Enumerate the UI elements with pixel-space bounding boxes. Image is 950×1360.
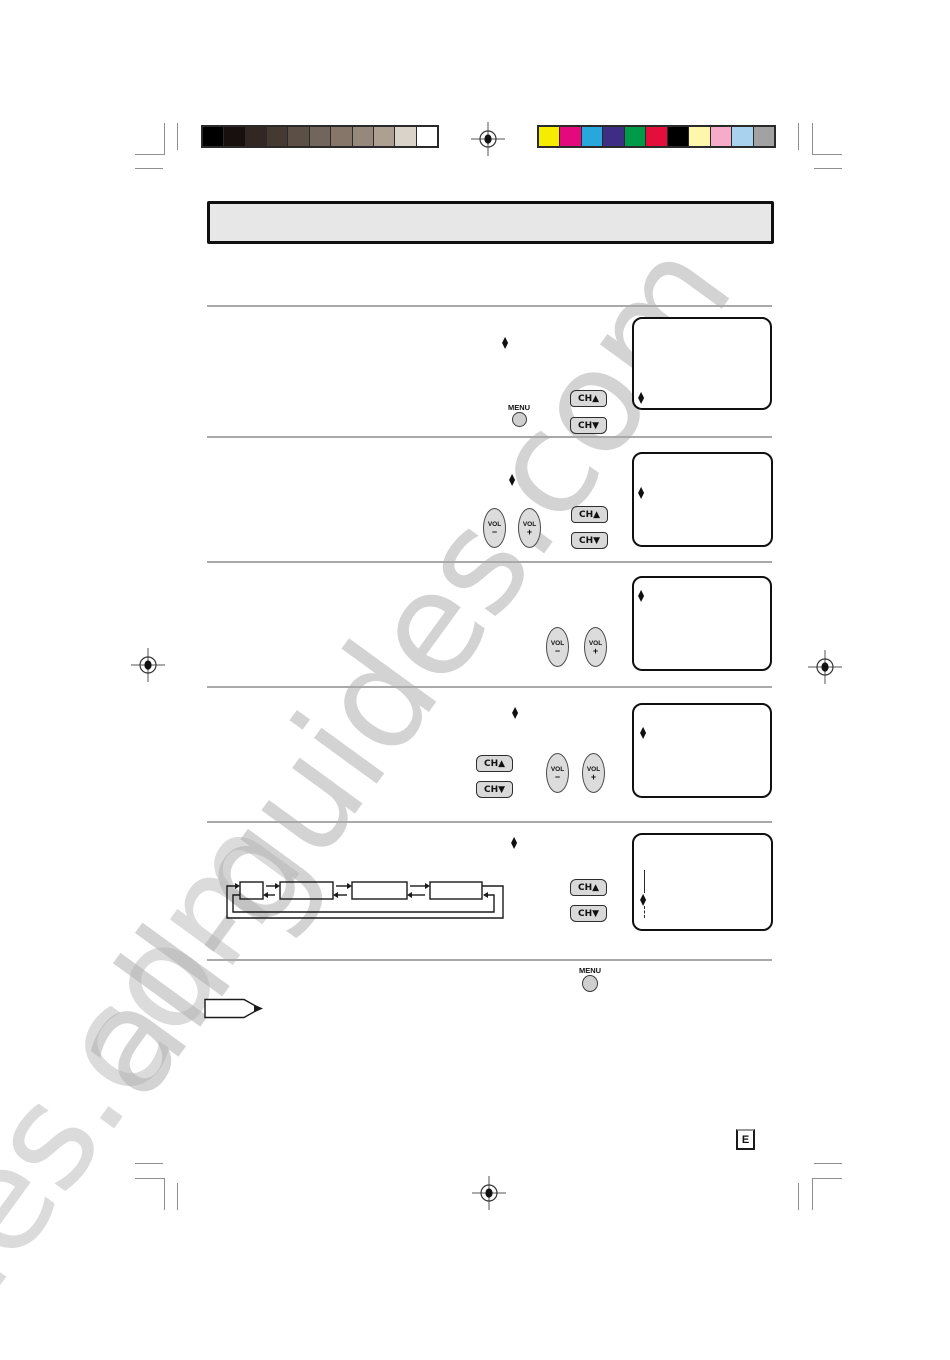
- section-divider: [207, 561, 772, 563]
- grayscale-swatch: [331, 127, 352, 146]
- up-down-arrows-icon: ▲▼: [638, 392, 644, 404]
- registration-mark-icon: [131, 648, 165, 682]
- channel-up-button: CH▲: [570, 879, 607, 896]
- color-swatch: [668, 127, 689, 146]
- grayscale-swatch: [395, 127, 416, 146]
- menu-button-label: MENU: [508, 403, 530, 412]
- volume-plus-button: VOL+: [518, 508, 541, 548]
- registration-mark-icon: [808, 650, 842, 684]
- color-calibration-strip: [537, 125, 776, 148]
- crop-mark-line: [135, 1178, 165, 1179]
- up-down-arrows-icon: ▲▼: [640, 727, 646, 739]
- channel-down-button: CH▼: [570, 905, 607, 922]
- page-language-badge: E: [736, 1129, 755, 1150]
- up-down-arrows-icon: ▲▼: [638, 590, 644, 602]
- up-down-arrows-icon: ▲▼: [640, 894, 646, 906]
- crop-mark-line: [812, 1178, 813, 1210]
- menu-button-label: MENU: [579, 966, 601, 975]
- menu-button: MENU: [579, 966, 601, 992]
- up-down-arrows-icon: ▲▼: [502, 337, 508, 349]
- channel-up-button: CH▲: [476, 755, 513, 772]
- menu-button: MENU: [508, 403, 530, 427]
- section-divider: [207, 959, 772, 961]
- up-down-arrows-icon: ▲▼: [509, 474, 515, 486]
- channel-up-button: CH▲: [571, 506, 608, 523]
- grayscale-swatch: [246, 127, 267, 146]
- color-swatch: [754, 127, 774, 146]
- volume-plus-button: VOL+: [584, 627, 607, 667]
- color-swatch: [732, 127, 753, 146]
- color-swatch: [625, 127, 646, 146]
- volume-minus-button: VOL−: [546, 753, 569, 793]
- menu-button-circle-icon: [582, 975, 598, 992]
- section-divider: [207, 436, 772, 438]
- tv-screen-illustration: [632, 452, 773, 547]
- color-swatch: [582, 127, 603, 146]
- crop-mark-line: [135, 1163, 163, 1164]
- slider-bar-icon: [644, 870, 645, 893]
- volume-minus-button: VOL−: [546, 627, 569, 667]
- crop-mark-line: [812, 154, 842, 155]
- color-swatch: [689, 127, 710, 146]
- crop-mark-line: [177, 1183, 178, 1210]
- grayscale-swatch: [417, 127, 437, 146]
- page-title-bar: [207, 201, 774, 244]
- grayscale-swatch: [224, 127, 245, 146]
- section-divider: [207, 305, 772, 307]
- slider-dashed-bar-icon: [644, 906, 645, 918]
- up-down-arrows-icon: ▲▼: [638, 487, 644, 499]
- channel-down-button: CH▼: [571, 532, 608, 549]
- grayscale-swatch: [267, 127, 288, 146]
- grayscale-swatch: [288, 127, 309, 146]
- tv-screen-illustration: [632, 703, 772, 798]
- channel-down-button: CH▼: [476, 781, 513, 798]
- section-divider: [207, 686, 772, 688]
- crop-mark-line: [814, 1163, 842, 1164]
- crop-mark-line: [164, 123, 165, 155]
- crop-mark-line: [135, 168, 163, 169]
- menu-button-circle-icon: [512, 412, 527, 427]
- volume-minus-button: VOL−: [483, 508, 506, 548]
- color-swatch: [560, 127, 581, 146]
- crop-mark-line: [798, 123, 799, 150]
- color-swatch: [603, 127, 624, 146]
- mode-cycle-diagram: [222, 872, 514, 926]
- crop-mark-line: [812, 1178, 842, 1179]
- registration-mark-icon: [472, 1176, 506, 1210]
- crop-mark-line: [164, 1178, 165, 1210]
- up-down-arrows-icon: ▲▼: [511, 837, 517, 849]
- color-swatch: [646, 127, 667, 146]
- up-down-arrows-icon: ▲▼: [512, 707, 518, 719]
- crop-mark-line: [177, 123, 178, 150]
- channel-down-button: CH▼: [570, 417, 607, 434]
- section-divider: [207, 821, 772, 823]
- color-swatch: [711, 127, 732, 146]
- grayscale-swatch: [203, 127, 224, 146]
- registration-mark-icon: [471, 122, 505, 156]
- tv-screen-illustration: [632, 576, 772, 671]
- crop-mark-line: [814, 168, 842, 169]
- note-pointer-icon: [204, 998, 264, 1019]
- tv-screen-illustration: [632, 317, 772, 410]
- grayscale-swatch: [374, 127, 395, 146]
- channel-up-button: CH▲: [570, 390, 607, 407]
- color-swatch: [539, 127, 560, 146]
- grayscale-calibration-strip: [201, 125, 439, 148]
- crop-mark-line: [798, 1183, 799, 1210]
- scanned-manual-page: all-guides.com all-guides.com: [0, 0, 950, 1360]
- crop-mark-line: [135, 154, 165, 155]
- crop-mark-line: [812, 123, 813, 155]
- grayscale-swatch: [310, 127, 331, 146]
- tv-screen-illustration: [632, 833, 773, 931]
- volume-plus-button: VOL+: [582, 753, 605, 793]
- grayscale-swatch: [353, 127, 374, 146]
